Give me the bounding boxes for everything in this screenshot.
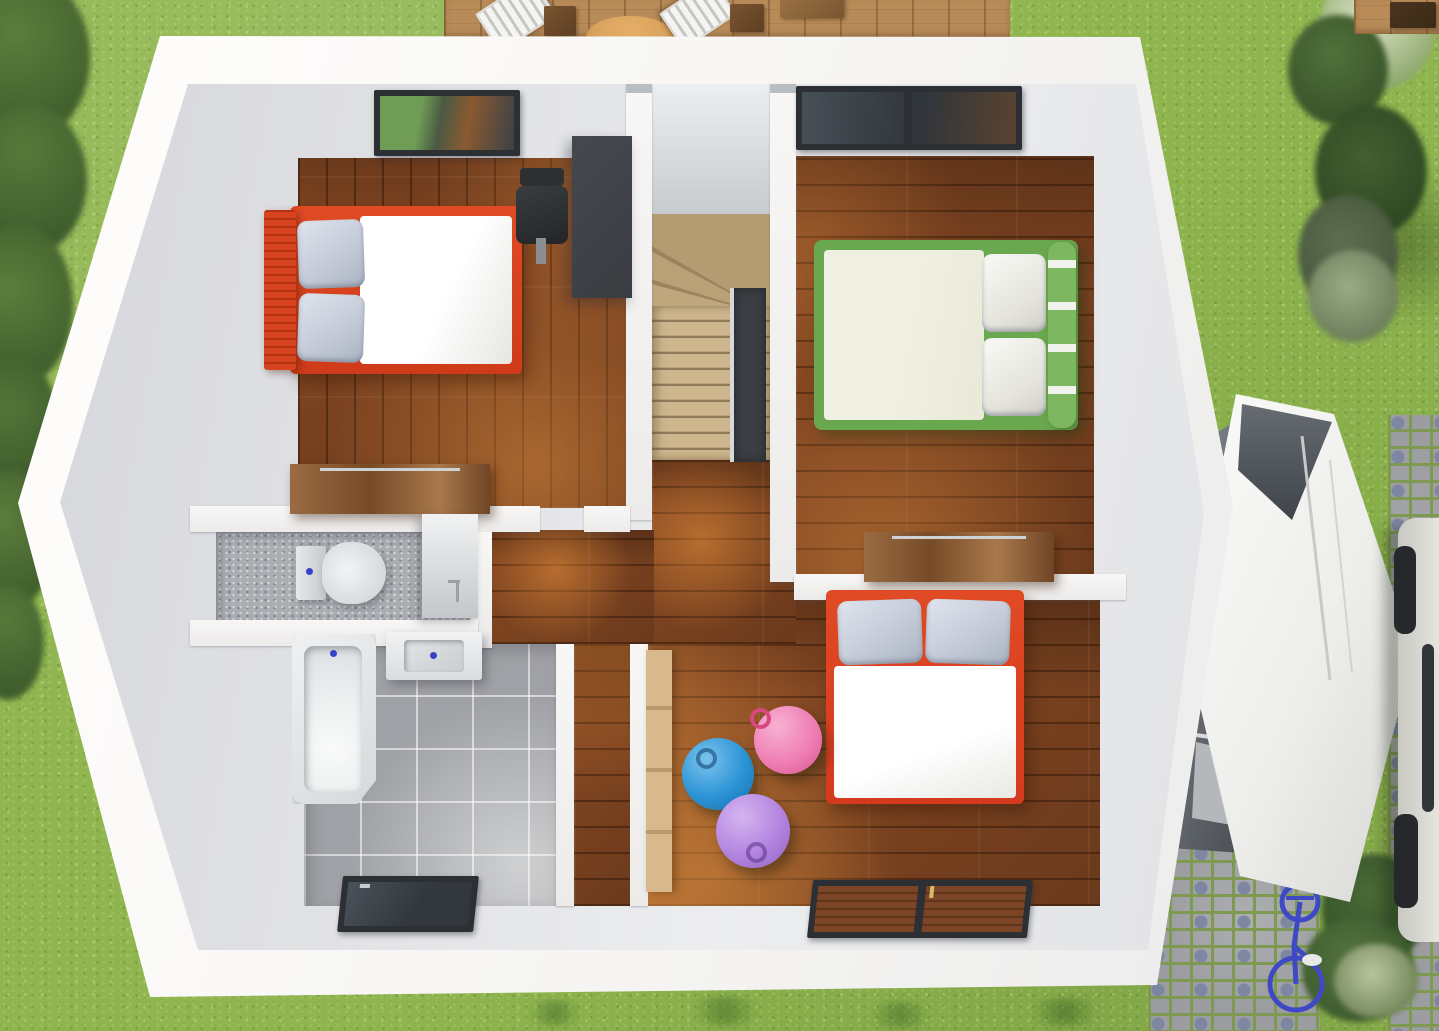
skylight-window-bedroom2 bbox=[796, 86, 1022, 150]
faucet-handle bbox=[448, 580, 460, 583]
lawn-plants bbox=[860, 1002, 940, 1028]
desk bbox=[572, 136, 632, 298]
deck-top bbox=[444, 0, 1010, 38]
staircase bbox=[652, 84, 770, 460]
dresser-bedroom1 bbox=[290, 464, 490, 514]
toilet-bowl bbox=[322, 542, 386, 604]
ball-handle bbox=[750, 708, 771, 729]
kids-bed-duvet bbox=[834, 666, 1016, 798]
deck-top-right bbox=[1354, 0, 1439, 34]
deck-table-long bbox=[780, 0, 844, 18]
pillow bbox=[297, 219, 365, 289]
skylight-mullion bbox=[904, 90, 912, 146]
ball-handle bbox=[696, 748, 717, 769]
landing-floor-2 bbox=[478, 530, 654, 644]
hallway-floor bbox=[574, 644, 632, 906]
washbasin bbox=[386, 632, 482, 680]
washbasin-drain bbox=[430, 652, 437, 659]
bed-duvet bbox=[360, 216, 512, 364]
stair-ceiling-slope bbox=[652, 84, 770, 216]
bathtub bbox=[292, 634, 376, 804]
pillow-white bbox=[982, 254, 1046, 332]
tree-strip-right bbox=[1260, 0, 1439, 360]
exercise-ball-pink bbox=[754, 706, 822, 774]
exercise-ball-purple bbox=[716, 794, 790, 868]
sunlight-patch bbox=[478, 530, 654, 644]
kids-room-window bbox=[807, 880, 1033, 938]
window-handle bbox=[360, 884, 370, 888]
bicycle bbox=[1248, 868, 1348, 1028]
chair-base bbox=[536, 238, 546, 264]
car bbox=[1392, 518, 1439, 942]
dresser-rail bbox=[320, 468, 460, 471]
toilet-flush-button bbox=[306, 568, 313, 575]
pillow bbox=[837, 599, 923, 666]
wall-stairwell-east bbox=[770, 84, 796, 582]
pillow bbox=[925, 599, 1011, 666]
bed-headboard-red bbox=[264, 210, 296, 370]
toilet bbox=[296, 542, 388, 604]
wall-cap-chrome bbox=[626, 84, 652, 93]
wall-cap-chrome bbox=[770, 84, 796, 93]
chair-back bbox=[520, 168, 564, 186]
bathtub-basin bbox=[304, 646, 362, 792]
bed-kids-red bbox=[826, 590, 1024, 804]
deck-side-table bbox=[730, 4, 764, 32]
pillow-white bbox=[982, 338, 1046, 416]
deck-dark-furniture bbox=[1390, 2, 1436, 28]
bathtub-drain bbox=[330, 650, 337, 657]
window-glass bbox=[344, 882, 473, 926]
bathroom-window bbox=[337, 876, 479, 932]
car-window-strip bbox=[1422, 644, 1434, 812]
chair-seat bbox=[516, 186, 568, 244]
bed-double-green bbox=[814, 240, 1078, 430]
car-wheel-rear bbox=[1394, 814, 1418, 908]
hedge-bush bbox=[0, 585, 44, 700]
tree-bush-pale bbox=[1308, 250, 1398, 342]
office-chair bbox=[514, 168, 570, 264]
scene-canvas bbox=[0, 0, 1439, 1031]
pillow bbox=[297, 293, 365, 363]
skylight-window-bedroom1 bbox=[374, 90, 520, 156]
stair-handrail bbox=[730, 288, 734, 462]
faucet bbox=[456, 580, 459, 602]
bike-saddle bbox=[1302, 954, 1322, 966]
stair-void-panel bbox=[734, 288, 766, 462]
lawn-plants bbox=[1020, 998, 1110, 1026]
wall-bathroom-hall bbox=[556, 644, 574, 906]
wall-bedroom1-south-b bbox=[584, 506, 630, 532]
dresser-rail bbox=[892, 536, 1026, 539]
bed-headboard-roll-green bbox=[1048, 242, 1076, 428]
vanity-cabinet bbox=[422, 514, 478, 618]
ball-handle bbox=[746, 842, 767, 863]
lawn-plants bbox=[680, 996, 770, 1026]
lawn-plants bbox=[520, 1000, 590, 1026]
bed-double-red bbox=[264, 206, 522, 374]
sunlight-patch bbox=[574, 644, 632, 906]
skylight-glass bbox=[380, 96, 514, 150]
car-wheel-front bbox=[1394, 546, 1416, 634]
deck-side-table bbox=[544, 6, 576, 36]
wardrobe-tan bbox=[646, 650, 672, 892]
bed-duvet-cream bbox=[824, 250, 984, 420]
dresser-bedroom2 bbox=[864, 532, 1054, 582]
